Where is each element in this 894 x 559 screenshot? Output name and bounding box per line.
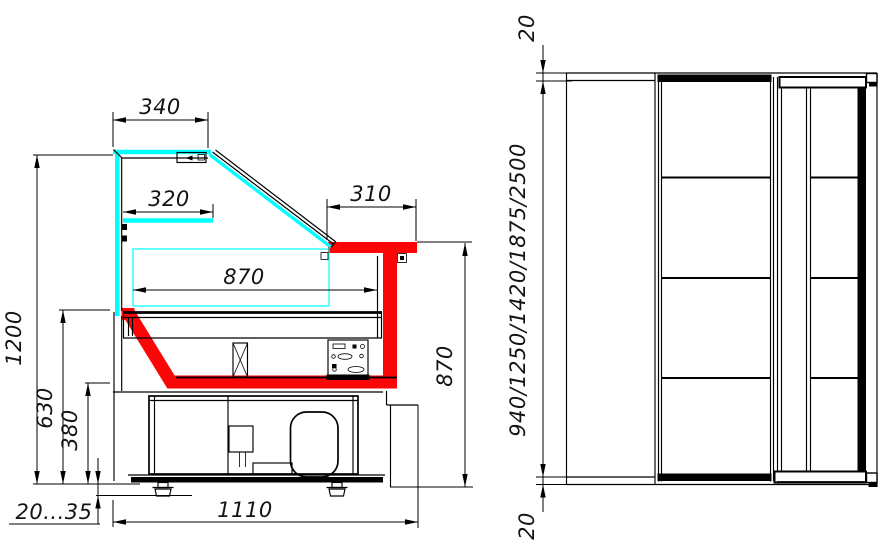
dim-canopy-width-label: 340: [139, 95, 181, 119]
technical-drawing-page: 340 320 310 870 1200 630: [0, 0, 894, 559]
glass-band-section-joints: [662, 178, 771, 379]
glass-band-top-bar: [658, 75, 772, 83]
dimensions: 340 320 310 870 1200 630: [2, 14, 572, 540]
plan-dimensions: 20 940/1250/1420/1875/2500 20: [506, 14, 572, 540]
dim-top-overhang-label: 20: [515, 14, 539, 42]
plan-inner-walls: [782, 88, 811, 473]
dim-canopy-width: 340: [113, 95, 208, 148]
plan-left-panel: [566, 73, 655, 485]
plan-corner-fill-bottom: [869, 483, 878, 488]
dim-bowl-height: 380: [58, 383, 110, 484]
shelf-bracket-pin-upper: [122, 224, 128, 230]
control-base-bar: [327, 375, 370, 381]
foot-stem: [332, 483, 342, 488]
glass-band-bottom-bar: [658, 474, 772, 482]
plan-corner-fill-top: [869, 83, 877, 87]
machine-compartment: [149, 396, 358, 477]
adjustable-foot-left: [153, 483, 174, 497]
foot-pad: [155, 489, 171, 496]
control-dot-4: [360, 354, 364, 358]
dim-shelf-width: 320: [123, 187, 213, 218]
dim-base-depth-label: 1110: [217, 498, 272, 522]
foot-pad: [329, 489, 345, 496]
glass-frame-lines: [114, 150, 209, 312]
plan-outline: [566, 73, 877, 487]
control-slot-3: [348, 367, 364, 373]
plan-view: [566, 73, 877, 487]
dim-counter-height-label: 870: [433, 345, 457, 387]
dim-bowl-height-label: 380: [58, 409, 82, 451]
dim-countertop-depth: 310: [327, 182, 416, 241]
control-unit: [327, 340, 370, 380]
control-slot-1: [333, 344, 345, 349]
front-base-step: [387, 391, 419, 487]
dim-bottom-overhang-label: 20: [515, 512, 539, 540]
dim-counter-height: 870: [390, 242, 473, 487]
front-glass-diagonal: [210, 155, 332, 248]
mounting-bracket-pin: [400, 256, 404, 260]
plan-glass-band: [658, 75, 774, 482]
dim-leg-adjustment-label: 20...35: [16, 500, 93, 524]
counter-red-front-panel: [383, 252, 397, 382]
equipment-stand: [240, 452, 246, 467]
control-slot-2: [338, 354, 352, 360]
plan-corner-block-top: [867, 74, 878, 83]
adjustable-foot-right: [327, 483, 348, 497]
front-glass-frame: [213, 150, 337, 247]
dim-deck-height: 630: [33, 310, 110, 484]
counter-red-top: [328, 242, 417, 253]
plan-top-rail: [780, 77, 867, 88]
dim-deck-height-label: 630: [33, 387, 57, 429]
shelf-bracket-pin-lower: [122, 236, 128, 242]
dim-deck-length-label: 870: [223, 265, 265, 289]
compressor-unit: [291, 412, 339, 477]
mounting-bracket-left: [321, 253, 328, 260]
dim-base-depth: 1110: [113, 405, 418, 528]
lamp-end-cap: [198, 155, 205, 161]
brace-cross-icon: [233, 343, 248, 377]
foot-stem: [158, 483, 168, 488]
dim-deck-length: 870: [133, 265, 377, 293]
display-case-drawing: 340 320 310 870 1200 630: [0, 0, 894, 559]
plan-right-section: [775, 74, 878, 488]
control-dot-3: [332, 355, 336, 359]
control-dot-2: [361, 345, 365, 349]
deck-red-bowl: [128, 312, 397, 382]
lamp-arrow-icon: [186, 156, 193, 161]
control-dot-6: [333, 368, 337, 372]
support-brace: [233, 343, 248, 377]
equipment-base: [253, 463, 292, 474]
dim-countertop-depth-label: 310: [350, 182, 392, 206]
equipment-box: [229, 426, 253, 452]
plan-rear-wall-band: [858, 88, 867, 473]
dim-shelf-width-label: 320: [148, 187, 190, 211]
dim-overall-height-label: 1200: [2, 310, 26, 365]
plan-bottom-rail: [775, 472, 867, 483]
plan-inner-section-joints: [811, 178, 859, 379]
control-dot-1: [353, 345, 357, 349]
frame-bar: [131, 477, 383, 483]
dim-case-lengths-label: 940/1250/1420/1875/2500: [506, 143, 530, 437]
base-frame: [128, 475, 385, 483]
plan-corner-block-bottom: [867, 473, 878, 483]
rear-panel: [114, 312, 122, 481]
